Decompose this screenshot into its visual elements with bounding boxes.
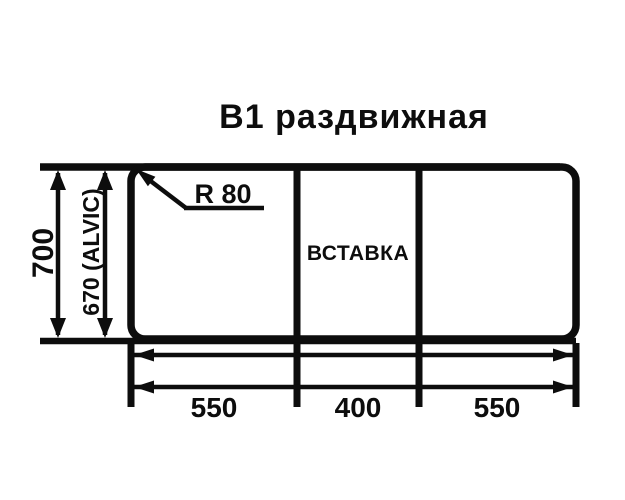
radius-label: R 80 [194, 179, 251, 209]
drawing-canvas: B1 раздвижная ВСТАВКА R 80 700 670 (ALVI… [0, 0, 625, 500]
width-label-right: 550 [474, 392, 521, 423]
width-dim2-arrow-right-icon [553, 381, 573, 394]
height-inner-arrow-up-icon [97, 170, 113, 190]
height-inner-arrow-down-icon [97, 318, 113, 338]
height-outer-arrow-up-icon [50, 170, 66, 190]
width-dim1-arrow-right-icon [553, 349, 573, 362]
height-outer-label: 700 [27, 228, 60, 278]
height-inner-label: 670 (ALVIC) [78, 188, 104, 315]
height-outer-arrow-down-icon [50, 318, 66, 338]
technical-drawing: B1 раздвижная ВСТАВКА R 80 700 670 (ALVI… [0, 0, 625, 500]
width-label-middle: 400 [335, 392, 382, 423]
width-label-left: 550 [191, 392, 238, 423]
insert-label: ВСТАВКА [307, 242, 409, 265]
drawing-title: B1 раздвижная [219, 98, 489, 136]
width-dim1-arrow-left-icon [134, 349, 154, 362]
width-dim2-arrow-left-icon [134, 381, 154, 394]
